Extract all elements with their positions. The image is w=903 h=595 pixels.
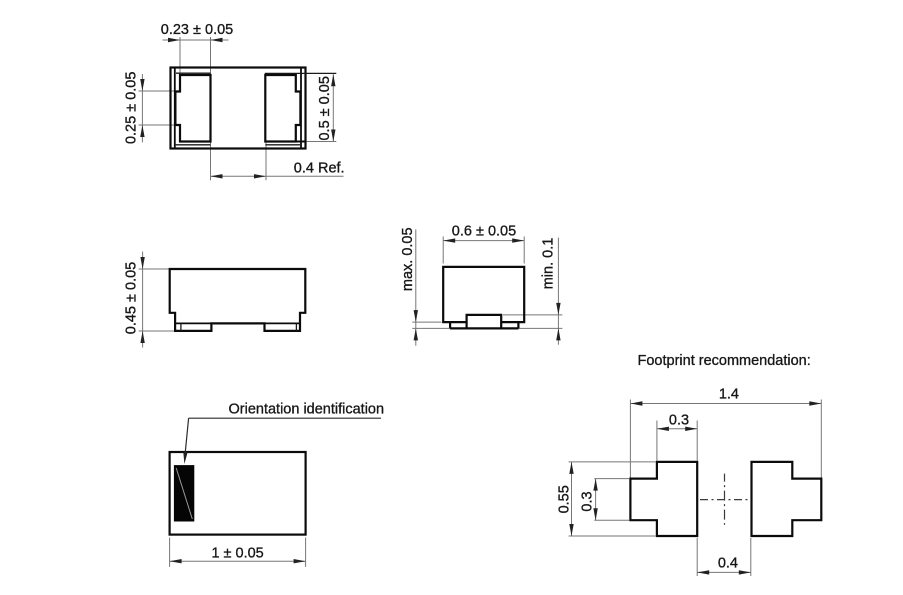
svg-text:0.45 ± 0.05: 0.45 ± 0.05 (124, 262, 140, 334)
svg-text:min. 0.1: min. 0.1 (540, 238, 556, 290)
svg-text:Footprint recommendation:: Footprint recommendation: (638, 353, 811, 369)
svg-text:0.23 ± 0.05: 0.23 ± 0.05 (161, 22, 233, 38)
svg-text:0.3: 0.3 (669, 413, 689, 429)
svg-text:0.3: 0.3 (580, 491, 596, 511)
svg-text:Orientation identification: Orientation identification (229, 402, 385, 418)
svg-text:0.25 ± 0.05: 0.25 ± 0.05 (124, 72, 140, 144)
svg-text:1.4: 1.4 (719, 387, 739, 403)
svg-text:0.55: 0.55 (557, 485, 573, 513)
svg-text:0.6 ± 0.05: 0.6 ± 0.05 (452, 223, 516, 239)
svg-text:0.4: 0.4 (718, 555, 738, 571)
svg-text:1 ± 0.05: 1 ± 0.05 (211, 545, 263, 561)
svg-text:0.4 Ref.: 0.4 Ref. (294, 160, 345, 176)
svg-text:0.5 ± 0.05: 0.5 ± 0.05 (317, 76, 333, 140)
svg-text:max. 0.05: max. 0.05 (400, 227, 416, 291)
